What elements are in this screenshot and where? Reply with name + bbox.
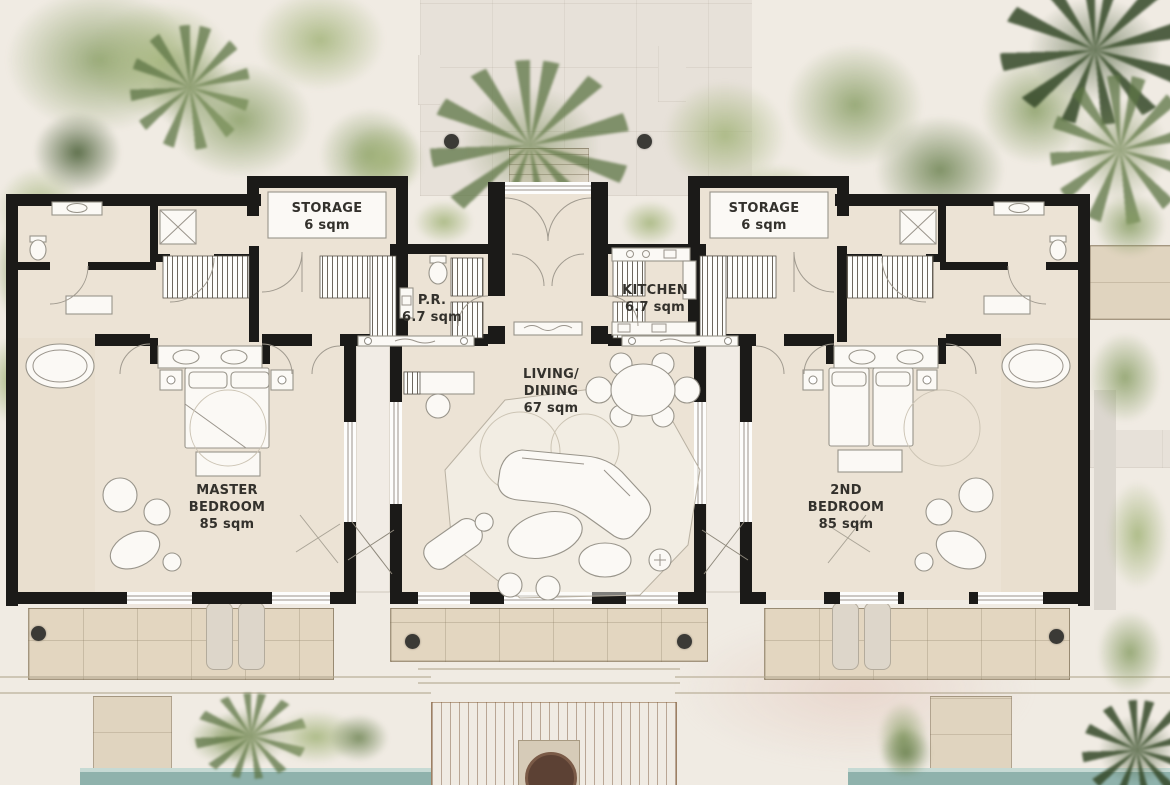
room-area: 67 sqm bbox=[491, 400, 611, 417]
floor-plan-scene: STORAGE 6 sqm STORAGE 6 sqm P.R. 6.7 sqm… bbox=[0, 0, 1170, 785]
link-slot-west bbox=[356, 346, 390, 592]
label-kitchen: KITCHEN 6.7 sqm bbox=[595, 282, 715, 316]
entry-console bbox=[514, 322, 582, 335]
pouf bbox=[536, 576, 560, 600]
room-name: MASTER BEDROOM bbox=[157, 482, 297, 516]
master-vanity bbox=[158, 346, 262, 368]
room-area: 85 sqm bbox=[157, 516, 297, 533]
label-powder-room: P.R. 6.7 sqm bbox=[392, 292, 472, 326]
room-name: P.R. bbox=[392, 292, 472, 309]
room-area: 6.7 sqm bbox=[595, 299, 715, 316]
room-name: STORAGE bbox=[267, 200, 387, 217]
link-slot-east bbox=[706, 346, 740, 592]
room-name: LIVING/ DINING bbox=[491, 366, 611, 400]
room-name: STORAGE bbox=[704, 200, 824, 217]
label-second-bedroom: 2ND BEDROOM 85 sqm bbox=[776, 482, 916, 533]
room-area: 6 sqm bbox=[704, 217, 824, 234]
label-master-bedroom: MASTER BEDROOM 85 sqm bbox=[157, 482, 297, 533]
pouf bbox=[498, 573, 522, 597]
label-storage-left: STORAGE 6 sqm bbox=[267, 200, 387, 234]
room-name: 2ND BEDROOM bbox=[776, 482, 916, 516]
desk-chair bbox=[426, 394, 450, 418]
room-name: KITCHEN bbox=[595, 282, 715, 299]
room-area: 85 sqm bbox=[776, 516, 916, 533]
label-storage-right: STORAGE 6 sqm bbox=[704, 200, 824, 234]
label-living-dining: LIVING/ DINING 67 sqm bbox=[491, 366, 611, 417]
room-area: 6 sqm bbox=[267, 217, 387, 234]
second-vanity bbox=[834, 346, 938, 368]
coffee-table bbox=[579, 543, 631, 577]
room-area: 6.7 sqm bbox=[392, 309, 472, 326]
